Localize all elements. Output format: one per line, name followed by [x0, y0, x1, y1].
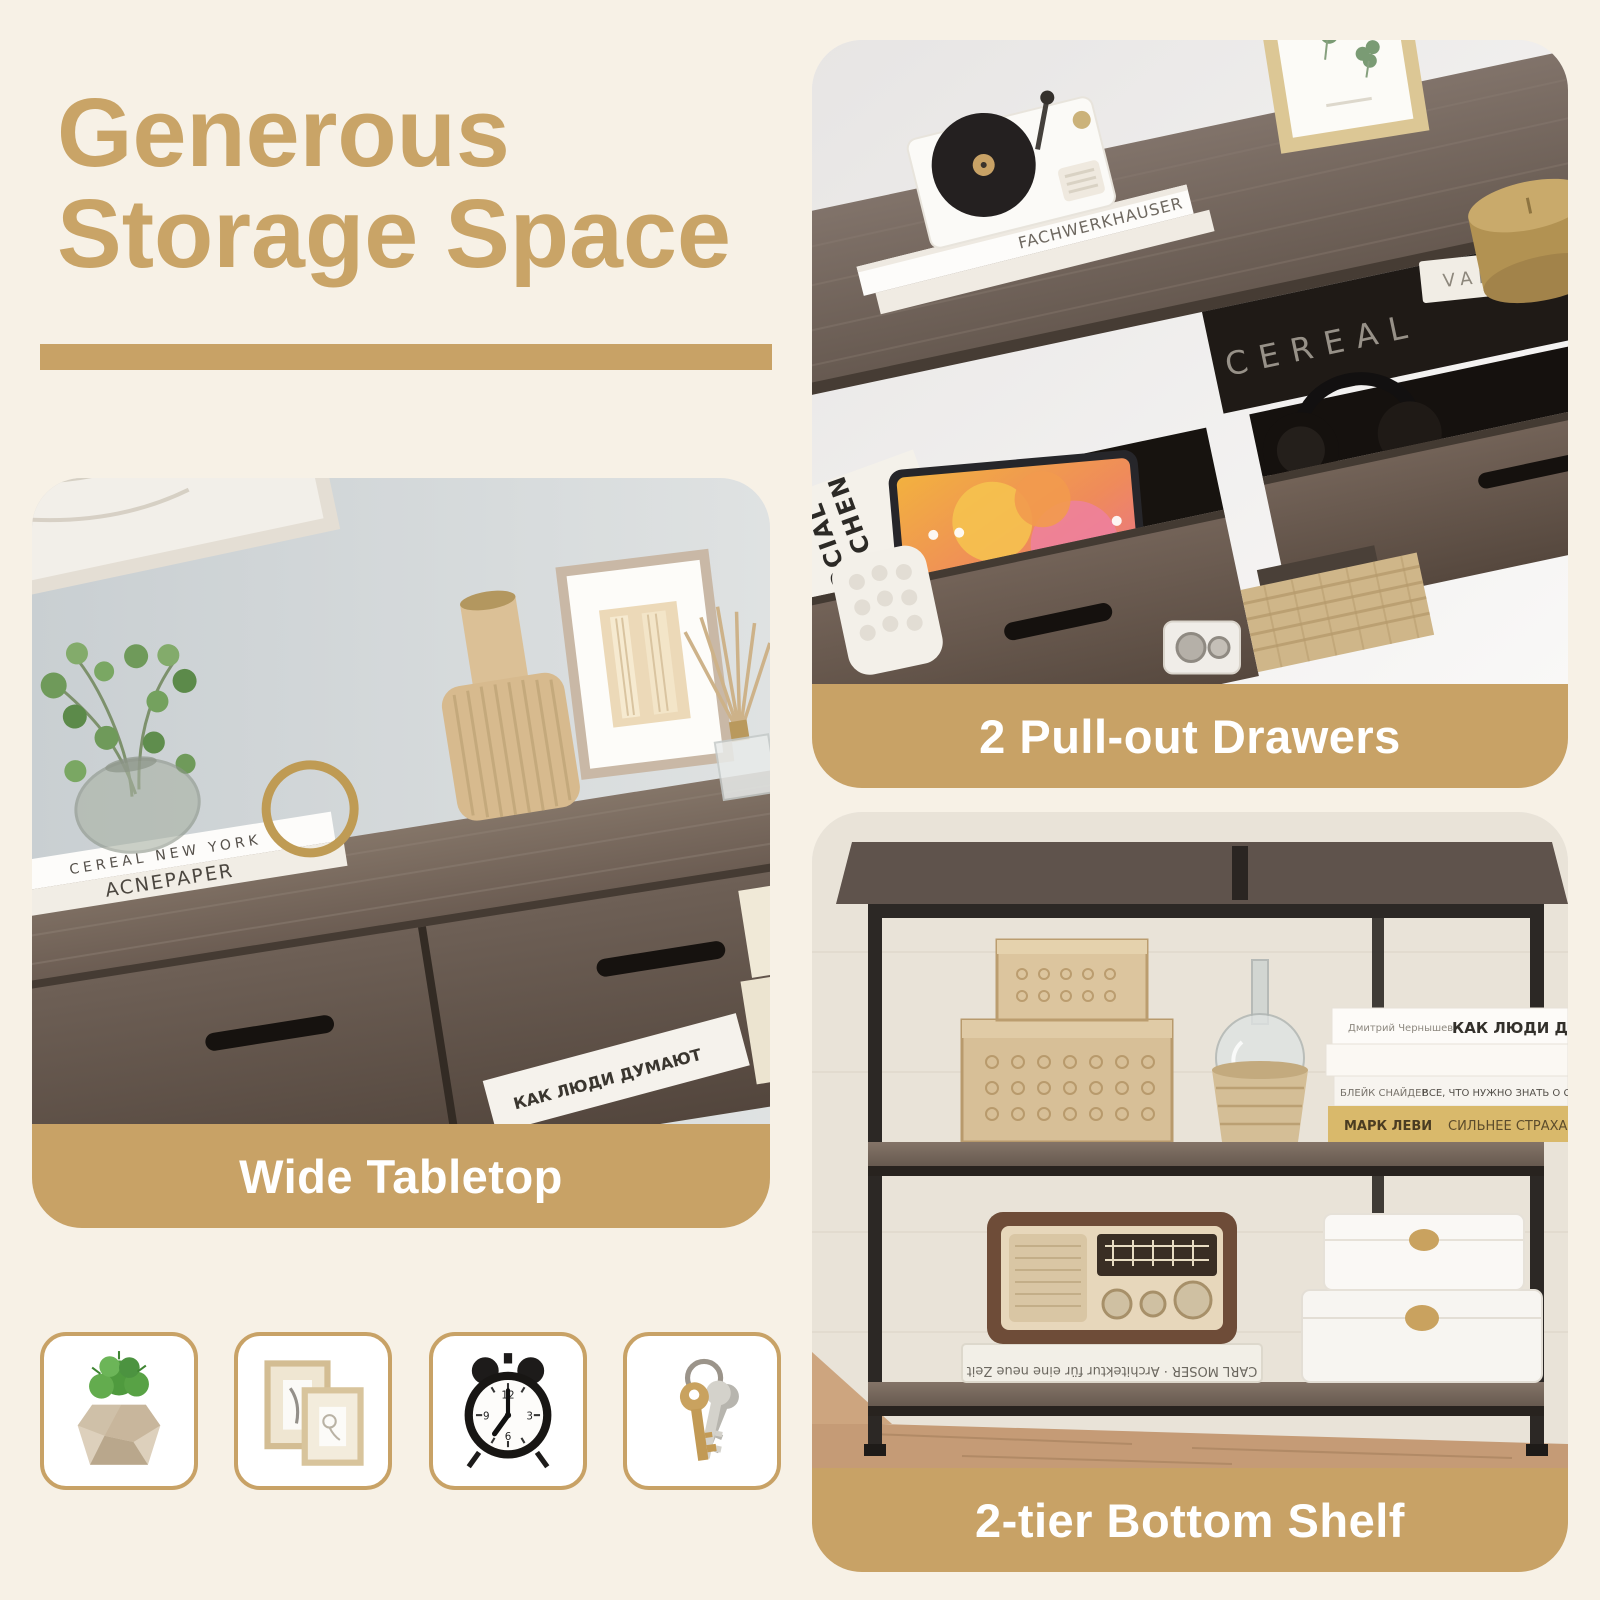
shelf-photo: Дмитрий Чернышев КАК ЛЮДИ ДУМАЮТ БЛЕЙК С…	[812, 812, 1568, 1468]
svg-text:3: 3	[526, 1410, 533, 1422]
page-title-line1: Generous	[57, 78, 510, 187]
column-picture-frame	[555, 549, 734, 780]
front-frame	[305, 1390, 361, 1462]
drawers-photo: CEREAL VAN	[812, 40, 1568, 684]
svg-text:Дмитрий Чернышев: Дмитрий Чернышев	[1348, 1023, 1453, 1034]
svg-text:МАРК ЛЕВИ: МАРК ЛЕВИ	[1344, 1119, 1432, 1134]
potted-plant-icon	[57, 1349, 181, 1473]
svg-text:БЛЕЙК СНАЙДЕР: БЛЕЙК СНАЙДЕР	[1340, 1086, 1427, 1099]
drawers-photo-illustration: CEREAL VAN	[812, 40, 1568, 684]
vintage-radio	[987, 1212, 1237, 1344]
accessory-tile-keys	[623, 1332, 781, 1490]
accessory-tile-frames	[234, 1332, 392, 1490]
radio-book: CARL MOSER · Architektur für eine neue Z…	[962, 1344, 1262, 1382]
svg-text:6: 6	[505, 1431, 512, 1443]
keys-icon	[640, 1349, 764, 1473]
svg-text:9: 9	[483, 1410, 490, 1422]
foliage	[89, 1351, 149, 1399]
tabletop-caption: Wide Tabletop	[32, 1124, 770, 1228]
feature-card-shelf: Дмитрий Чернышев КАК ЛЮДИ ДУМАЮТ БЛЕЙК С…	[812, 812, 1568, 1572]
page-title: Generous Storage Space	[57, 82, 731, 284]
tabletop-photo: КАК ЛЮДИ ДУМАЮТ CEREAL NEW YORK ACNEPAPE…	[32, 478, 770, 1124]
svg-text:СИЛЬНЕЕ СТРАХА: СИЛЬНЕЕ СТРАХА	[1448, 1119, 1567, 1134]
white-jewelry-boxes	[1302, 1214, 1542, 1382]
alarm-clock-icon: 12369	[446, 1349, 570, 1473]
feature-card-drawers: CEREAL VAN	[812, 40, 1568, 788]
svg-text:КАК ЛЮДИ ДУМАЮТ: КАК ЛЮДИ ДУМАЮТ	[1452, 1019, 1568, 1037]
title-underline	[40, 344, 772, 370]
shelf-caption: 2-tier Bottom Shelf	[812, 1468, 1568, 1572]
shelf-photo-illustration: Дмитрий Чернышев КАК ЛЮДИ ДУМАЮТ БЛЕЙК С…	[812, 812, 1568, 1468]
page-title-line2: Storage Space	[57, 179, 731, 288]
picture-frames-icon	[251, 1349, 375, 1473]
svg-text:ВСЕ, ЧТО НУЖНО ЗНАТЬ О СЦЕНАРИ: ВСЕ, ЧТО НУЖНО ЗНАТЬ О СЦЕНАРИИ	[1422, 1088, 1568, 1099]
svg-text:CARL MOSER · Architektur für e: CARL MOSER · Architektur für eine neue Z…	[967, 1363, 1258, 1378]
toy-camera	[1164, 622, 1240, 674]
tabletop-photo-illustration: КАК ЛЮДИ ДУМАЮТ CEREAL NEW YORK ACNEPAPE…	[32, 478, 770, 1124]
feature-card-tabletop: КАК ЛЮДИ ДУМАЮТ CEREAL NEW YORK ACNEPAPE…	[32, 478, 770, 1228]
accessory-tile-plant	[40, 1332, 198, 1490]
book-stack-top-shelf: Дмитрий Чернышев КАК ЛЮДИ ДУМАЮТ БЛЕЙК С…	[1326, 1008, 1568, 1142]
geometric-pot	[78, 1405, 161, 1465]
drawers-caption: 2 Pull-out Drawers	[812, 684, 1568, 788]
accessory-tile-clock: 12369	[429, 1332, 587, 1490]
